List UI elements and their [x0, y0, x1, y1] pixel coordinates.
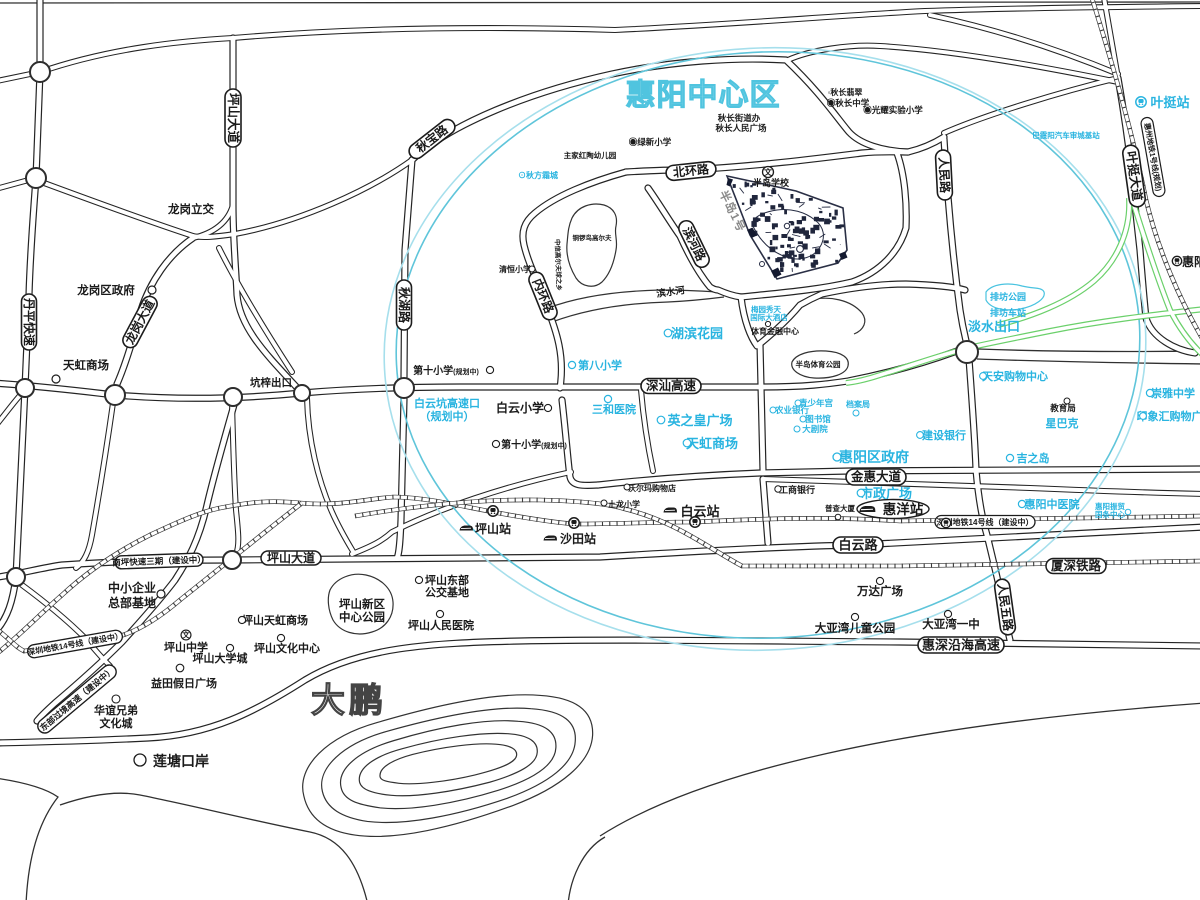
svg-text:大亚湾一中: 大亚湾一中 — [922, 617, 980, 631]
svg-text:公交基地: 公交基地 — [425, 585, 469, 599]
svg-text:◉绿新小学: ◉绿新小学 — [629, 137, 672, 147]
svg-text:万达广场: 万达广场 — [856, 584, 903, 598]
svg-text:天安购物中心: 天安购物中心 — [982, 369, 1048, 383]
svg-text:龙岗区政府: 龙岗区政府 — [76, 283, 135, 297]
svg-text:坪山大学城: 坪山大学城 — [193, 651, 248, 665]
svg-text:大剧院: 大剧院 — [802, 424, 828, 434]
svg-text:排坊公园: 排坊公园 — [990, 291, 1026, 302]
svg-text:崇雅中学: 崇雅中学 — [1151, 386, 1195, 400]
svg-text:白云站: 白云站 — [680, 504, 719, 519]
svg-text:坪山站: 坪山站 — [475, 521, 511, 536]
svg-text:土龙小学: 土龙小学 — [608, 499, 640, 509]
svg-text:工商银行: 工商银行 — [779, 484, 815, 495]
svg-text:（规划中）: （规划中） — [420, 409, 475, 423]
svg-text:淡水出口: 淡水出口 — [968, 319, 1020, 334]
svg-text:沃尔玛购物店: 沃尔玛购物店 — [628, 483, 676, 493]
svg-text:国际大酒店: 国际大酒店 — [750, 312, 788, 322]
svg-text:天虹商场: 天虹商场 — [63, 358, 109, 372]
svg-text:白云路: 白云路 — [838, 537, 878, 552]
svg-text:白云小学: 白云小学 — [496, 400, 544, 415]
svg-text:惠洋站: 惠洋站 — [883, 501, 924, 517]
svg-text:档案局: 档案局 — [846, 399, 870, 409]
svg-text:文化城: 文化城 — [100, 716, 133, 730]
svg-text:体育金融中心: 体育金融中心 — [751, 326, 799, 336]
svg-text:秋湖路: 秋湖路 — [397, 287, 412, 324]
svg-text:莲塘口岸: 莲塘口岸 — [153, 753, 209, 769]
svg-text:清恒小学: 清恒小学 — [499, 264, 531, 274]
svg-text:坪山东部: 坪山东部 — [425, 573, 469, 587]
svg-text:惠阳中医院: 惠阳中医院 — [1025, 497, 1080, 511]
svg-text:教育局: 教育局 — [1049, 403, 1076, 413]
svg-text:坪山人民医院: 坪山人民医院 — [408, 618, 474, 632]
svg-text:人民路: 人民路 — [936, 157, 953, 195]
svg-text:普查大厦: 普查大厦 — [825, 503, 855, 513]
svg-text:市政广场: 市政广场 — [860, 486, 912, 501]
svg-text:◦秋长翡翠: ◦秋长翡翠 — [828, 87, 863, 97]
svg-text:惠阳: 惠阳 — [1182, 254, 1200, 269]
svg-text:白云坑高速口: 白云坑高速口 — [414, 396, 480, 410]
svg-text:星巴克: 星巴克 — [1046, 416, 1079, 430]
svg-text:国条中心: 国条中心 — [1095, 509, 1125, 519]
svg-text:厦深铁路: 厦深铁路 — [1051, 558, 1102, 573]
svg-text:农业银行: 农业银行 — [774, 405, 810, 415]
svg-text:铜锣鸟高尔夫: 铜锣鸟高尔夫 — [573, 233, 613, 242]
svg-text:龙岗立交: 龙岗立交 — [167, 202, 214, 216]
svg-text:建设银行: 建设银行 — [922, 428, 966, 442]
svg-text:华谊兄弟: 华谊兄弟 — [94, 703, 138, 717]
svg-text:惠阳中心区: 惠阳中心区 — [626, 79, 781, 112]
svg-text:秋长街道办: 秋长街道办 — [717, 113, 761, 123]
svg-text:坪山文化中心: 坪山文化中心 — [254, 641, 320, 655]
svg-text:坪山大道: 坪山大道 — [267, 550, 315, 565]
svg-text:秋长人民广场: 秋长人民广场 — [714, 123, 767, 133]
svg-text:惠阳区政府: 惠阳区政府 — [839, 449, 909, 465]
svg-text:半岛体育公园: 半岛体育公园 — [796, 359, 841, 369]
svg-text:丹平快速: 丹平快速 — [22, 298, 37, 346]
svg-text:中心公园: 中心公园 — [339, 610, 385, 624]
svg-text:第八小学: 第八小学 — [578, 358, 622, 372]
svg-text:天虹商场: 天虹商场 — [686, 436, 738, 451]
svg-text:湖滨花园: 湖滨花园 — [671, 326, 723, 341]
svg-text:益田假日广场: 益田假日广场 — [151, 676, 217, 690]
svg-text:中小企业: 中小企业 — [108, 580, 156, 595]
svg-text:叶挺站: 叶挺站 — [1150, 95, 1189, 110]
svg-text:总部基地: 总部基地 — [108, 595, 156, 610]
svg-text:三和医院: 三和医院 — [592, 402, 636, 416]
svg-text:主家红陶幼儿园: 主家红陶幼儿园 — [564, 150, 617, 160]
svg-text:坪山新区: 坪山新区 — [339, 597, 385, 611]
svg-text:坪山中学: 坪山中学 — [164, 640, 208, 654]
svg-text:大鹏: 大鹏 — [311, 682, 387, 720]
svg-text:坪山大道: 坪山大道 — [226, 93, 241, 144]
svg-text:图书馆: 图书馆 — [805, 414, 831, 424]
svg-text:坪山天虹商场: 坪山天虹商场 — [242, 613, 308, 627]
svg-text:排坊车站: 排坊车站 — [990, 307, 1026, 318]
svg-text:英之皇广场: 英之皇广场 — [666, 413, 732, 428]
svg-text:金惠大道: 金惠大道 — [850, 469, 902, 484]
svg-text:惠深沿海高速: 惠深沿海高速 — [922, 637, 1000, 652]
svg-text:深汕高速: 深汕高速 — [646, 378, 697, 393]
svg-text:坑梓出口: 坑梓出口 — [250, 376, 292, 389]
svg-text:⊙秋方霜城: ⊙秋方霜城 — [518, 170, 558, 180]
svg-text:吉之岛: 吉之岛 — [1017, 451, 1050, 465]
svg-text:巴霞阳汽车审城基站: 巴霞阳汽车审城基站 — [1032, 130, 1100, 140]
svg-text:◉光耀实验小学: ◉光耀实验小学 — [863, 105, 923, 115]
svg-text:沙田站: 沙田站 — [560, 531, 596, 546]
svg-text:半岛学校: 半岛学校 — [753, 177, 790, 188]
svg-text:大亚湾儿童公园: 大亚湾儿童公园 — [815, 621, 896, 635]
